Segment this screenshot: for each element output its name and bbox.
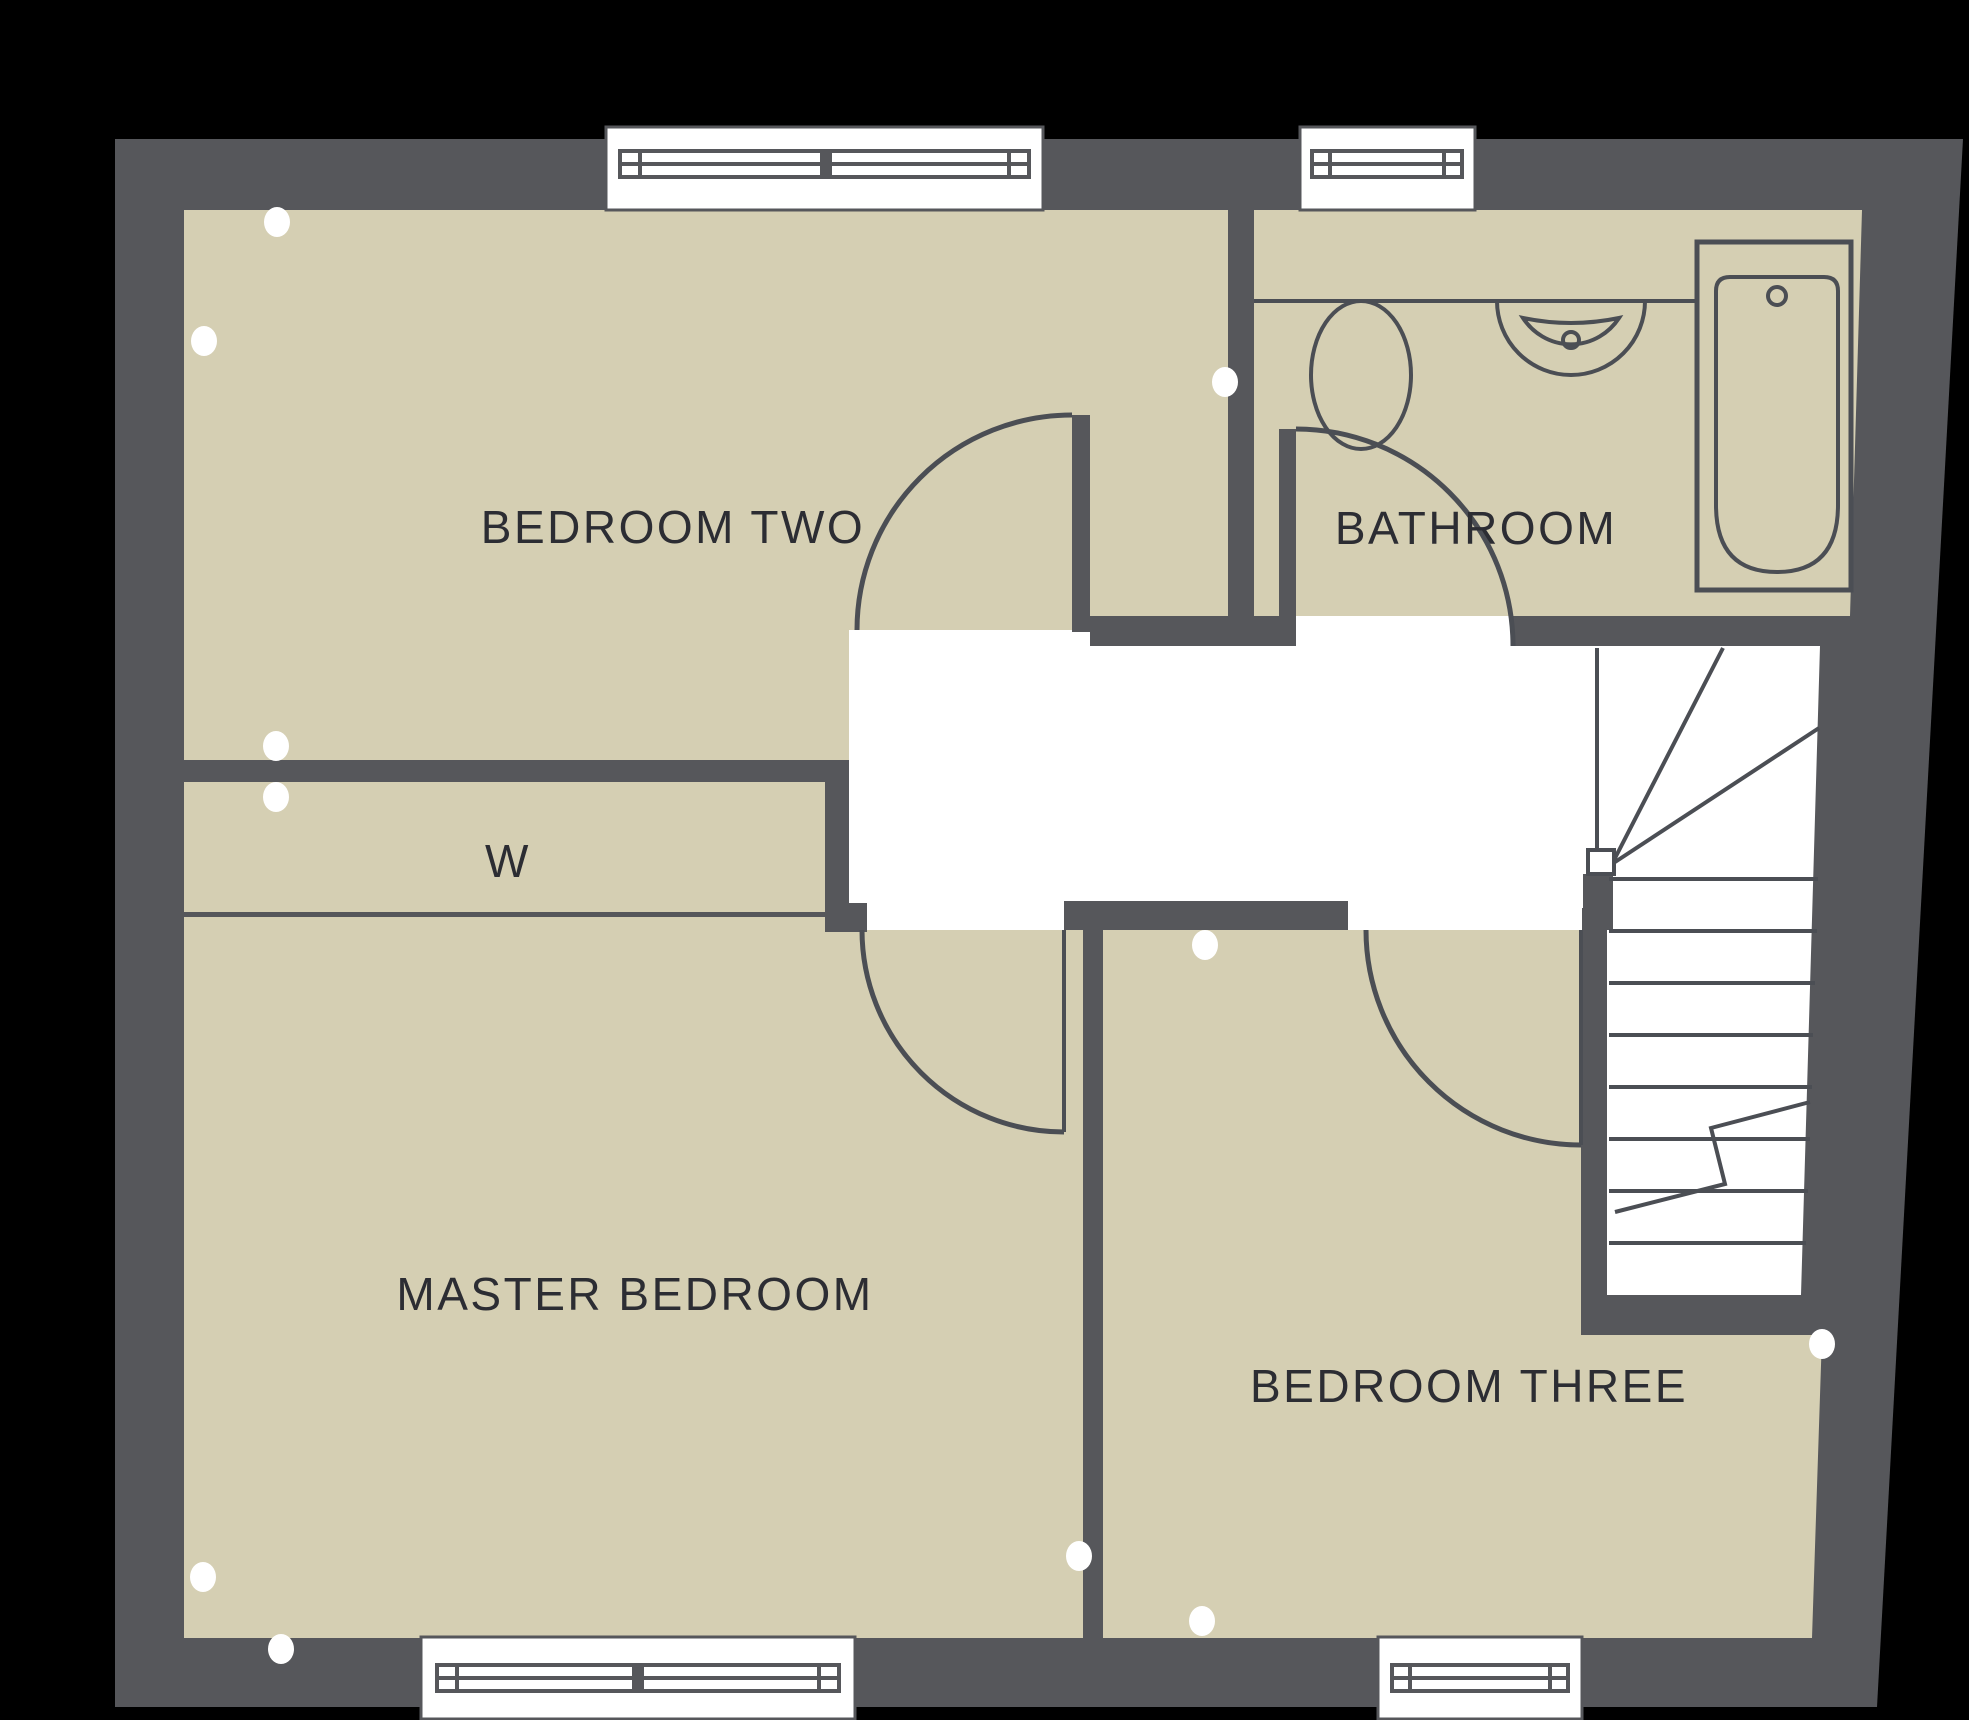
wall-dot <box>1212 367 1238 397</box>
room-bathroom-floor <box>1254 210 1862 616</box>
room-label-master-bedroom: MASTER BEDROOM <box>396 1268 873 1320</box>
window-bedroom-two <box>606 127 1043 210</box>
wall-dot <box>1192 930 1218 960</box>
wall-dot <box>263 782 289 812</box>
wall-dot <box>263 731 289 761</box>
bedroom-two-door-leaf <box>1072 415 1090 632</box>
floor-plan-canvas: BEDROOM TWO BATHROOM W MASTER BEDROOM BE… <box>0 0 1969 1720</box>
window-divider <box>820 149 832 179</box>
room-label-bedroom-three: BEDROOM THREE <box>1250 1360 1688 1412</box>
wall-dot <box>191 326 217 356</box>
bathroom-doorway-opening <box>1296 616 1513 646</box>
wall-hall-north <box>1090 616 1296 646</box>
wall-dot <box>1189 1606 1215 1636</box>
window-bedroom-three <box>1378 1637 1582 1719</box>
wall-dot <box>190 1562 216 1592</box>
stair-newel-post <box>1588 850 1614 874</box>
wall-dot <box>268 1634 294 1664</box>
wall-hall-south <box>1064 901 1348 930</box>
wall-dot <box>1809 1329 1835 1359</box>
room-label-bedroom-two: BEDROOM TWO <box>481 501 865 553</box>
room-label-wardrobe: W <box>485 835 531 887</box>
bathroom-door-leaf <box>1279 429 1296 646</box>
wall-hall-west-foot <box>825 903 867 932</box>
wall-dot <box>1066 1541 1092 1571</box>
wall-stairs-left <box>1582 908 1607 1298</box>
floor-plan-svg: BEDROOM TWO BATHROOM W MASTER BEDROOM BE… <box>0 0 1969 1720</box>
window-bathroom <box>1300 127 1475 210</box>
window-master-bedroom <box>421 1637 855 1719</box>
room-label-bathroom: BATHROOM <box>1335 502 1617 554</box>
window-divider <box>632 1663 644 1693</box>
wall-dot <box>264 207 290 237</box>
